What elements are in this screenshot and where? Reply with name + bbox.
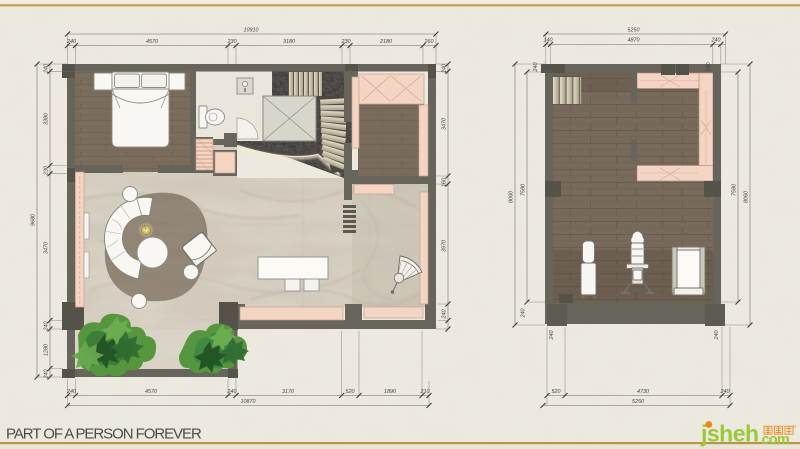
svg-text:230: 230 — [341, 39, 351, 45]
svg-text:3970: 3970 — [442, 240, 448, 252]
svg-text:4570: 4570 — [145, 389, 157, 395]
svg-text:240: 240 — [720, 389, 730, 395]
svg-text:260: 260 — [424, 39, 434, 45]
svg-text:210: 210 — [420, 389, 430, 395]
svg-text:230: 230 — [227, 39, 237, 45]
svg-text:8060: 8060 — [744, 191, 750, 203]
svg-text:3170: 3170 — [282, 389, 294, 395]
svg-text:3470: 3470 — [44, 242, 50, 254]
svg-text:240: 240 — [442, 310, 448, 320]
svg-text:1280: 1280 — [44, 344, 50, 356]
svg-text:3180: 3180 — [283, 39, 295, 45]
svg-text:140: 140 — [544, 38, 553, 44]
svg-text:240: 240 — [44, 370, 50, 380]
svg-text:520: 520 — [552, 389, 561, 395]
svg-text:4870: 4870 — [628, 38, 640, 44]
svg-text:4730: 4730 — [637, 389, 649, 395]
svg-text:240: 240 — [44, 322, 50, 332]
svg-text:10870: 10870 — [241, 399, 256, 405]
svg-text:9680: 9680 — [31, 214, 37, 226]
svg-text:240: 240 — [549, 331, 555, 341]
svg-text:5250: 5250 — [632, 399, 644, 405]
svg-text:7580: 7580 — [732, 184, 738, 196]
svg-text:230: 230 — [44, 166, 50, 176]
svg-text:520: 520 — [346, 389, 355, 395]
svg-text:PART OF A PERSON FOREVER: PART OF A PERSON FOREVER — [6, 426, 202, 443]
svg-text:160: 160 — [442, 178, 448, 187]
svg-text:240: 240 — [44, 64, 50, 74]
svg-text:240: 240 — [442, 64, 448, 74]
svg-text:10910: 10910 — [244, 28, 259, 34]
svg-text:240: 240 — [714, 331, 720, 341]
svg-text:5250: 5250 — [628, 28, 640, 34]
svg-text:3470: 3470 — [442, 118, 448, 130]
svg-text:1890: 1890 — [384, 389, 396, 395]
svg-text:4570: 4570 — [146, 39, 158, 45]
svg-text:240: 240 — [66, 39, 76, 45]
svg-text:2180: 2180 — [379, 39, 392, 45]
svg-text:240: 240 — [711, 38, 721, 44]
svg-text:240: 240 — [521, 309, 527, 319]
svg-text:240: 240 — [227, 389, 237, 395]
svg-text:7580: 7580 — [521, 184, 527, 196]
svg-text:240: 240 — [66, 389, 76, 395]
svg-text:3380: 3380 — [44, 113, 50, 125]
svg-text:240: 240 — [533, 63, 539, 73]
svg-text:8060: 8060 — [509, 191, 515, 203]
svg-text:240: 240 — [706, 63, 712, 73]
